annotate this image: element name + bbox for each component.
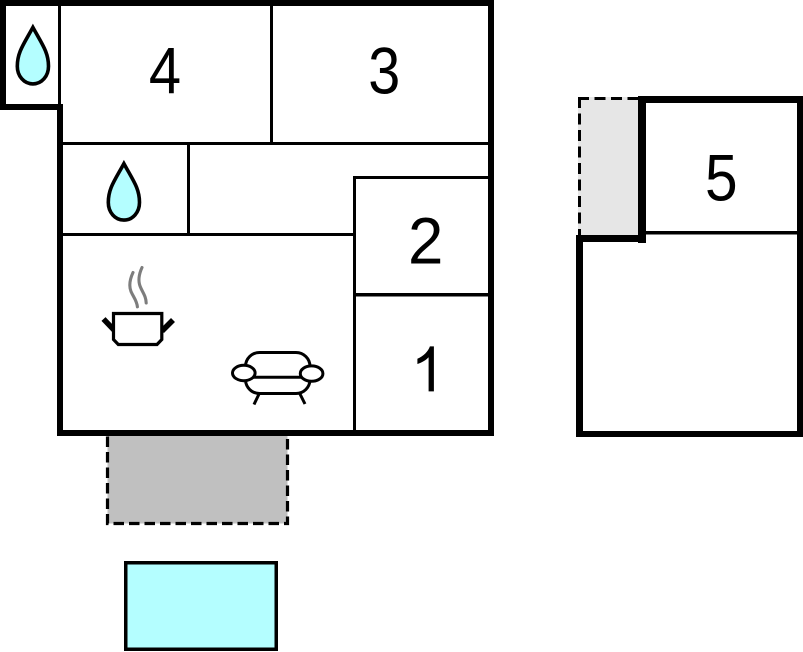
svg-text:4: 4 (149, 34, 181, 108)
svg-text:2: 2 (408, 204, 443, 278)
svg-text:5: 5 (705, 141, 738, 215)
svg-text:3: 3 (368, 34, 400, 108)
